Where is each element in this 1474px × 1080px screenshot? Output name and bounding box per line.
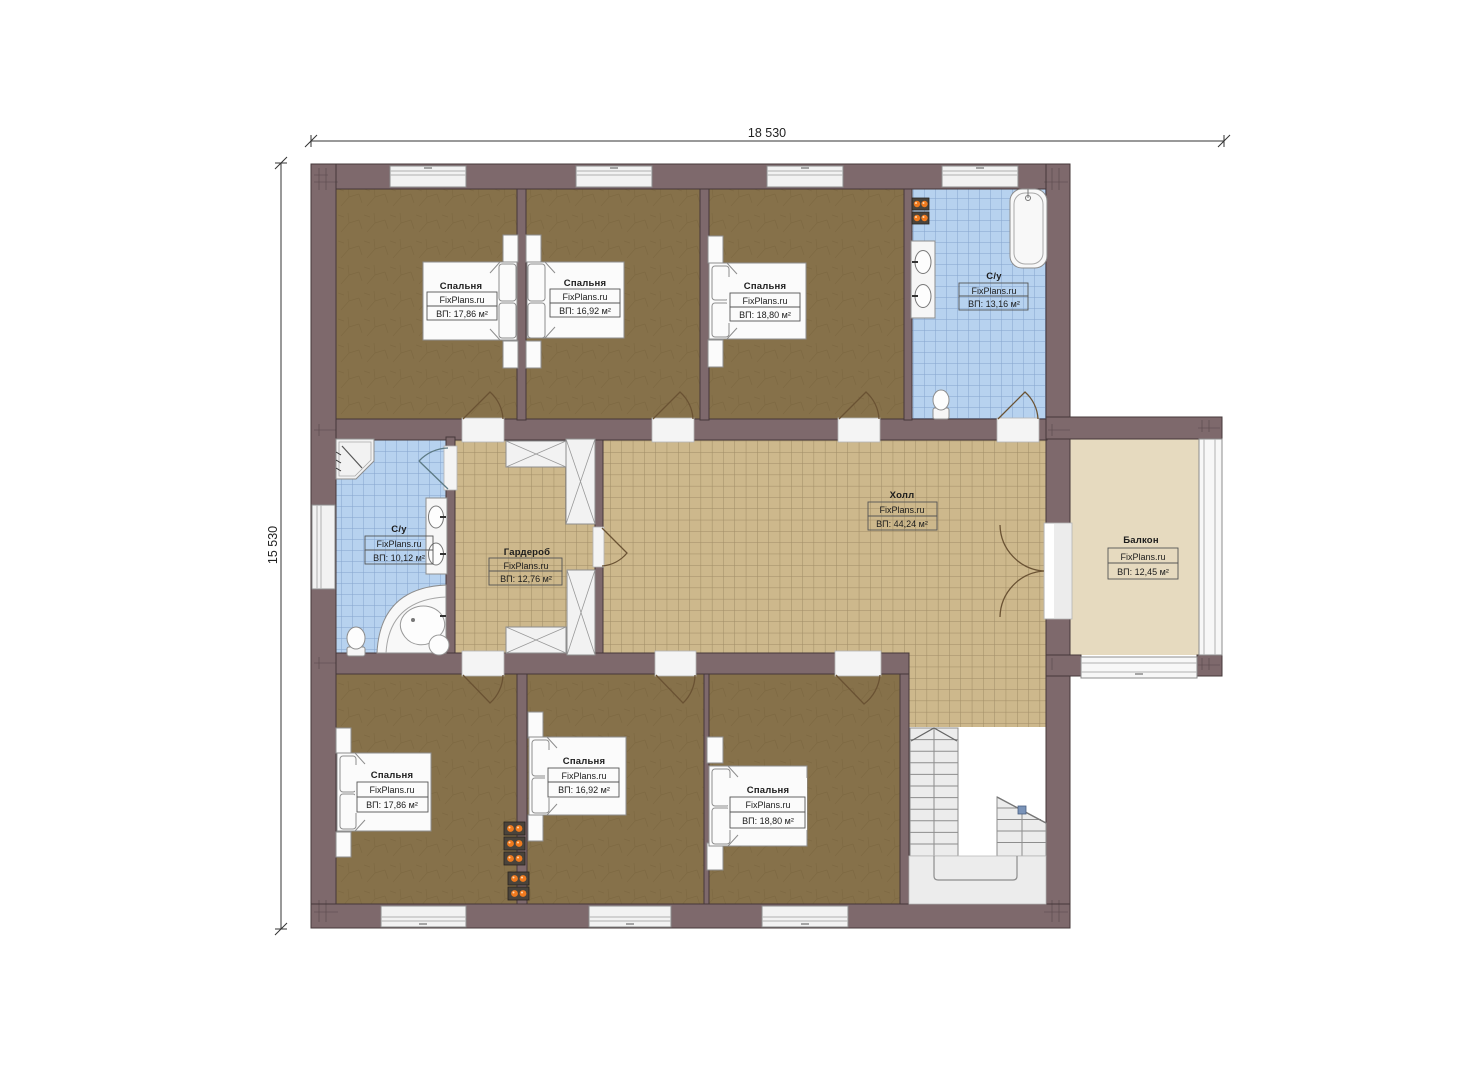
svg-text:FixPlans.ru: FixPlans.ru: [439, 295, 484, 305]
svg-text:ВП: 10,12 м²: ВП: 10,12 м²: [373, 553, 425, 563]
svg-text:С/у: С/у: [986, 271, 1002, 282]
svg-text:FixPlans.ru: FixPlans.ru: [1120, 552, 1165, 562]
svg-text:FixPlans.ru: FixPlans.ru: [369, 785, 414, 795]
svg-text:Гардероб: Гардероб: [504, 547, 551, 558]
svg-text:ВП: 18,80 м²: ВП: 18,80 м²: [739, 310, 791, 320]
svg-text:FixPlans.ru: FixPlans.ru: [742, 296, 787, 306]
svg-text:15 530: 15 530: [266, 526, 280, 564]
svg-text:Спальня: Спальня: [564, 278, 606, 289]
svg-text:Спальня: Спальня: [563, 756, 605, 767]
svg-text:Спальня: Спальня: [440, 281, 482, 292]
svg-text:Спальня: Спальня: [747, 785, 789, 796]
svg-text:FixPlans.ru: FixPlans.ru: [971, 286, 1016, 296]
svg-text:ВП: 44,24 м²: ВП: 44,24 м²: [876, 519, 928, 529]
svg-text:FixPlans.ru: FixPlans.ru: [562, 292, 607, 302]
svg-text:Спальня: Спальня: [744, 281, 786, 292]
svg-text:ВП: 17,86 м²: ВП: 17,86 м²: [366, 800, 418, 810]
svg-text:ВП: 17,86 м²: ВП: 17,86 м²: [436, 309, 488, 319]
svg-text:ВП: 16,92 м²: ВП: 16,92 м²: [558, 785, 610, 795]
svg-text:Холл: Холл: [890, 490, 915, 501]
svg-text:FixPlans.ru: FixPlans.ru: [376, 539, 421, 549]
svg-text:ВП: 12,76 м²: ВП: 12,76 м²: [500, 574, 552, 584]
svg-text:FixPlans.ru: FixPlans.ru: [561, 771, 606, 781]
svg-text:ВП: 16,92 м²: ВП: 16,92 м²: [559, 306, 611, 316]
svg-text:ВП: 13,16 м²: ВП: 13,16 м²: [968, 299, 1020, 309]
svg-text:FixPlans.ru: FixPlans.ru: [879, 505, 924, 515]
svg-text:Балкон: Балкон: [1123, 535, 1159, 546]
svg-text:С/у: С/у: [391, 524, 407, 535]
svg-text:FixPlans.ru: FixPlans.ru: [503, 561, 548, 571]
svg-text:18 530: 18 530: [748, 126, 786, 140]
svg-text:ВП: 12,45 м²: ВП: 12,45 м²: [1117, 567, 1169, 577]
svg-text:ВП: 18,80 м²: ВП: 18,80 м²: [742, 816, 794, 826]
svg-text:Спальня: Спальня: [371, 770, 413, 781]
svg-text:FixPlans.ru: FixPlans.ru: [745, 800, 790, 810]
